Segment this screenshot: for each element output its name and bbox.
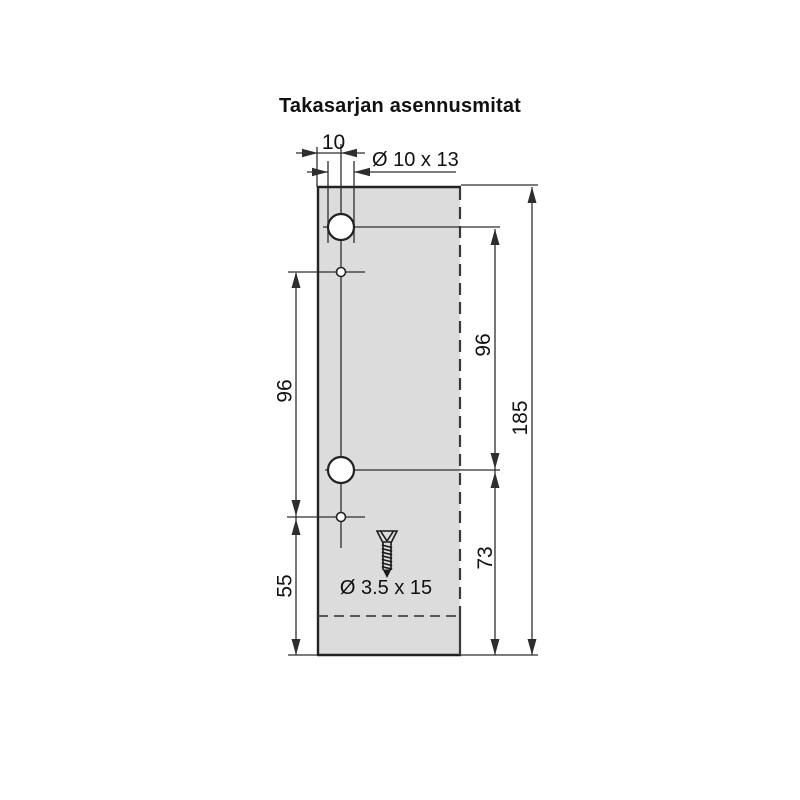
arrowhead-down-icon [491,453,500,469]
arrowhead-up-icon [292,519,301,535]
arrowhead-up-icon [528,187,537,203]
mounting-dimensions-drawing: 10 Ø 10 x 13 96 55 96 73 [0,0,800,800]
dimension-left-chain: 96 55 [274,272,301,655]
arrowhead-right-icon [312,168,328,176]
arrowhead-down-icon [491,639,500,655]
dimension-total-height: 185 [509,187,537,655]
arrowhead-down-icon [528,639,537,655]
hole-spec-label: Ø 10 x 13 [372,149,459,171]
dim-label-55: 55 [274,574,297,597]
arrowhead-up-icon [491,472,500,488]
arrowhead-right-icon [302,149,318,157]
dim-label-10: 10 [322,131,345,154]
arrowhead-left-icon [354,168,370,176]
screw-spec-label: Ø 3.5 x 15 [340,577,432,599]
dim-label-185: 185 [509,400,532,435]
dim-label-96-right: 96 [472,333,495,356]
arrowhead-up-icon [491,229,500,245]
arrowhead-down-icon [292,500,301,516]
pilot-hole-top [337,268,346,277]
dim-label-96-left: 96 [274,379,297,402]
large-hole-top [328,214,354,240]
dimension-edge-offset: 10 [296,131,365,157]
pilot-hole-bottom [337,513,346,522]
large-hole-bottom [328,457,354,483]
arrowhead-up-icon [292,272,301,288]
dimension-right-chain: 96 73 [472,229,500,655]
arrowhead-down-icon [292,639,301,655]
dim-label-73: 73 [474,546,497,569]
technical-drawing-page: Takasarjan asennusmitat [0,0,800,800]
